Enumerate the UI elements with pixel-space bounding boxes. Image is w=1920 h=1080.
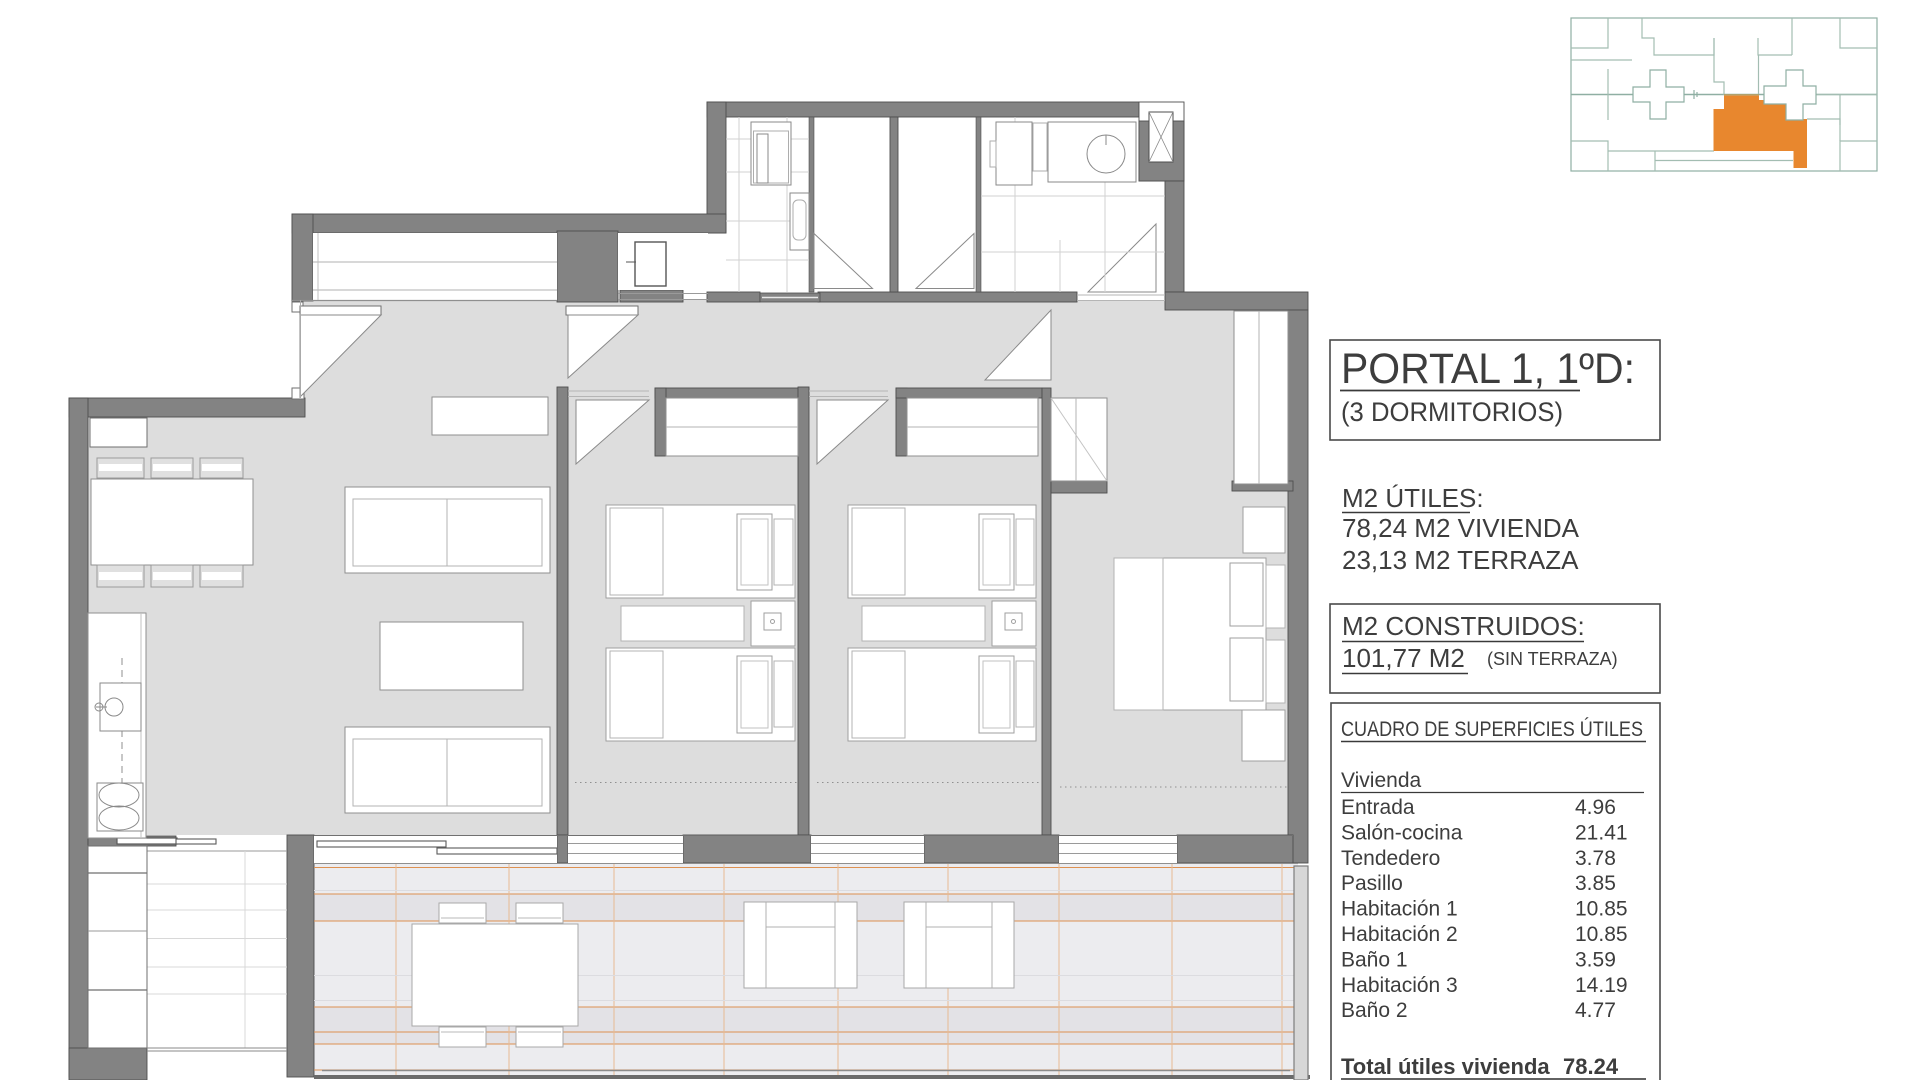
svg-text:101,77 M2: 101,77 M2 xyxy=(1342,643,1465,673)
svg-text:Habitación 1: Habitación 1 xyxy=(1341,898,1458,921)
svg-text:Vivienda: Vivienda xyxy=(1341,769,1421,792)
svg-text:78.24: 78.24 xyxy=(1563,1054,1619,1079)
svg-text:21.41: 21.41 xyxy=(1575,821,1628,844)
svg-text:Entrada: Entrada xyxy=(1341,796,1415,819)
svg-text:Pasillo: Pasillo xyxy=(1341,872,1403,895)
svg-text:(3 DORMITORIOS): (3 DORMITORIOS) xyxy=(1341,397,1563,427)
svg-text:CUADRO DE SUPERFICIES ÚTILES: CUADRO DE SUPERFICIES ÚTILES xyxy=(1341,718,1643,741)
svg-text:78,24 M2 VIVIENDA: 78,24 M2 VIVIENDA xyxy=(1342,513,1580,543)
svg-text:(SIN TERRAZA): (SIN TERRAZA) xyxy=(1487,649,1618,669)
svg-text:14.19: 14.19 xyxy=(1575,974,1628,997)
svg-text:4.96: 4.96 xyxy=(1575,796,1616,819)
svg-text:PORTAL 1, 1ºD:: PORTAL 1, 1ºD: xyxy=(1341,345,1635,393)
svg-text:Tendedero: Tendedero xyxy=(1341,847,1440,870)
svg-text:Salón-cocina: Salón-cocina xyxy=(1341,821,1463,844)
svg-text:M2 ÚTILES:: M2 ÚTILES: xyxy=(1342,483,1484,513)
svg-text:3.85: 3.85 xyxy=(1575,872,1616,895)
svg-text:3.59: 3.59 xyxy=(1575,948,1616,971)
svg-text:Total útiles vivienda: Total útiles vivienda xyxy=(1341,1054,1550,1079)
svg-text:10.85: 10.85 xyxy=(1575,898,1628,921)
svg-text:23,13 M2 TERRAZA: 23,13 M2 TERRAZA xyxy=(1342,545,1579,575)
svg-text:3.78: 3.78 xyxy=(1575,847,1616,870)
svg-text:10.85: 10.85 xyxy=(1575,923,1628,946)
svg-text:Habitación 2: Habitación 2 xyxy=(1341,923,1458,946)
svg-text:4.77: 4.77 xyxy=(1575,999,1616,1022)
svg-text:Baño 2: Baño 2 xyxy=(1341,999,1408,1022)
svg-text:Baño 1: Baño 1 xyxy=(1341,948,1408,971)
svg-text:Habitación 3: Habitación 3 xyxy=(1341,974,1458,997)
svg-text:M2 CONSTRUIDOS:: M2 CONSTRUIDOS: xyxy=(1342,611,1585,641)
